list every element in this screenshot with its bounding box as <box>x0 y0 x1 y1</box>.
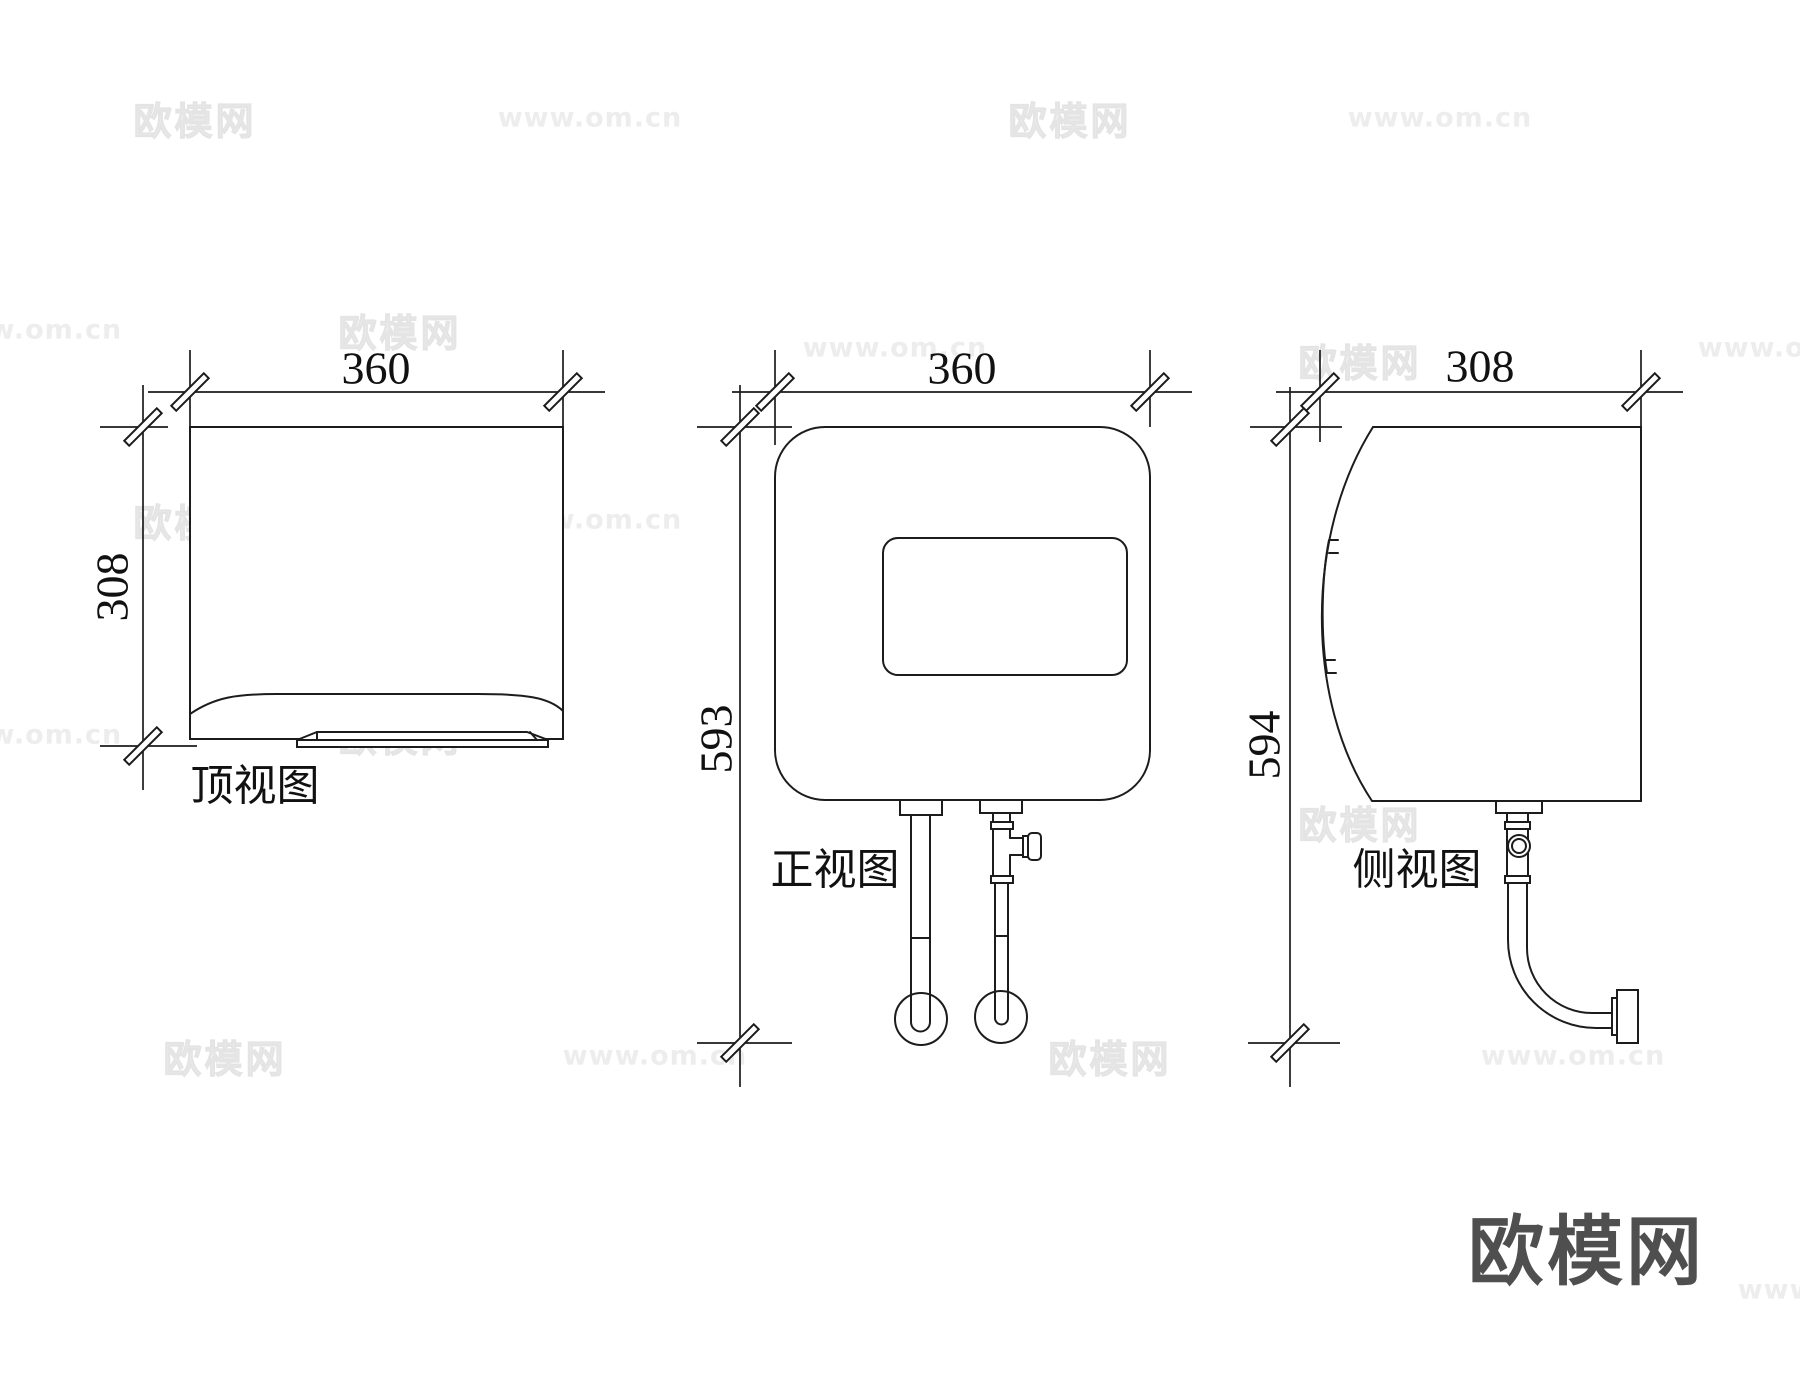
pipe-connector <box>980 800 1022 813</box>
side-view-depth-dim: 308 <box>1446 341 1515 392</box>
front-view-label: 正视图 <box>771 848 900 895</box>
pipe-coupling <box>991 822 1013 829</box>
three-view-technical-drawing: 360 308 顶视图 <box>0 0 1800 1387</box>
pipe-union <box>991 876 1013 883</box>
side-drain-pipe <box>1496 801 1638 1043</box>
view-front: 360 593 正视图 <box>691 343 1193 1088</box>
front-body-outline <box>775 427 1150 800</box>
top-view-label: 顶视图 <box>191 764 320 811</box>
site-logo: 欧模网 <box>1468 1190 1705 1300</box>
pipe-coupling <box>1505 822 1530 829</box>
side-view-label: 侧视图 <box>1353 848 1482 895</box>
front-view-height-dim: 593 <box>691 705 742 774</box>
side-view-height-dim: 594 <box>1239 711 1290 780</box>
top-view-width-dim: 360 <box>342 343 411 394</box>
pipe-union <box>1505 876 1530 883</box>
view-side: 308 594 侧视图 <box>1239 341 1684 1088</box>
top-view-outline <box>190 427 563 739</box>
pipe-connector <box>900 800 942 815</box>
pipe-connector <box>1496 801 1542 813</box>
pipe-end-cap <box>1617 990 1638 1043</box>
pipe-floor-flange <box>895 993 947 1045</box>
front-right-pipe <box>975 800 1041 1043</box>
top-view-depth-dim: 308 <box>87 553 138 622</box>
valve-branch <box>1010 838 1023 855</box>
valve-knob <box>1028 833 1041 860</box>
front-view-width-dim: 360 <box>928 343 997 394</box>
view-top: 360 308 顶视图 <box>87 343 606 811</box>
side-body-outline <box>1322 427 1641 801</box>
pipe-floor-flange <box>975 991 1027 1043</box>
front-left-pipe <box>895 800 947 1045</box>
drawing-canvas: 欧模网 www.om.cn 欧模网 www.om.cn www.om.cn 欧模… <box>0 0 1800 1387</box>
